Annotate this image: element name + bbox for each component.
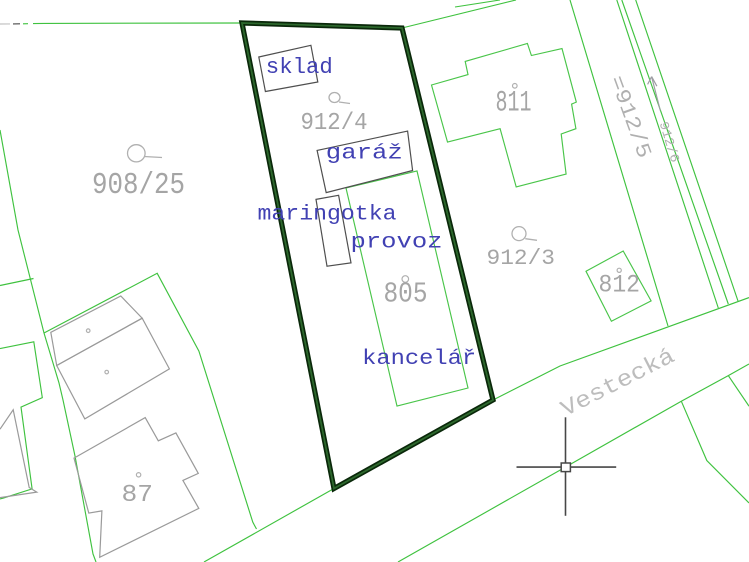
svg-text:908/25: 908/25 [92,168,185,203]
svg-text:912/3: 912/3 [487,246,556,271]
svg-text:87: 87 [122,482,154,509]
svg-text:kancelář: kancelář [362,347,476,371]
svg-text:sklad: sklad [266,55,333,80]
svg-text:garáž: garáž [326,143,403,166]
svg-text:812: 812 [599,271,641,300]
svg-text:811: 811 [496,85,532,119]
svg-text:912/4: 912/4 [301,110,368,137]
svg-text:provoz: provoz [351,231,443,255]
svg-text:maringotka: maringotka [258,203,397,227]
svg-text:805: 805 [384,278,428,311]
